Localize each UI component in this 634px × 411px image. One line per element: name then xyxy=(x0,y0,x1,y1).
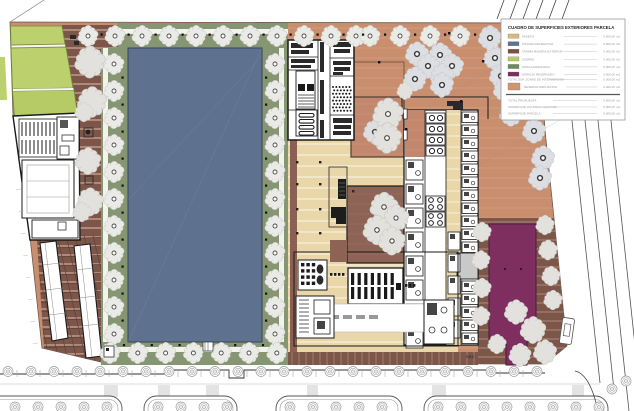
svg-text:SUPERFICIE PARCELA: SUPERFICIE PARCELA xyxy=(508,112,541,116)
svg-text:0.000,00 m2: 0.000,00 m2 xyxy=(603,73,620,77)
svg-text:0.000,00 m2: 0.000,00 m2 xyxy=(603,35,620,39)
svg-text:PISCINA RECREATIVA: PISCINA RECREATIVA xyxy=(522,42,553,46)
svg-text:0.000,00 m2: 0.000,00 m2 xyxy=(603,112,620,116)
svg-text:PASEOS: PASEOS xyxy=(522,35,534,39)
svg-text:0.000,00 m2: 0.000,00 m2 xyxy=(603,85,620,89)
svg-text:ZONA AJARDINADA: ZONA AJARDINADA xyxy=(522,65,550,69)
svg-text:0.000,00 m2: 0.000,00 m2 xyxy=(603,50,620,54)
svg-text:0.000,00 m2: 0.000,00 m2 xyxy=(603,99,620,103)
svg-text:RESERVA AMPLIACION: RESERVA AMPLIACION xyxy=(524,85,557,89)
svg-text:CESPED: CESPED xyxy=(522,57,535,61)
svg-text:SUPERFICIE OCUPADA CERRADA: SUPERFICIE OCUPADA CERRADA xyxy=(508,105,557,109)
svg-text:0.000,00 m2: 0.000,00 m2 xyxy=(603,42,620,46)
svg-text:0.000,00 m2: 0.000,00 m2 xyxy=(603,105,620,109)
svg-text:TOTAL PROPUESTA: TOTAL PROPUESTA xyxy=(508,99,536,103)
svg-text:0.000,00 m2: 0.000,00 m2 xyxy=(603,57,620,61)
svg-text:0.000,00 m2: 0.000,00 m2 xyxy=(603,78,620,82)
svg-text:0.000,00 m2: 0.000,00 m2 xyxy=(603,65,620,69)
svg-text:CUADRO DE SUPERFICIES EXTERIOR: CUADRO DE SUPERFICIES EXTERIORES PARCELA xyxy=(508,25,614,30)
svg-text:SSS: SSS xyxy=(466,354,474,359)
svg-text:ESPACIO RESERVADO: ESPACIO RESERVADO xyxy=(522,73,555,77)
svg-text:TARIMA MADERA EXTERIOR: TARIMA MADERA EXTERIOR xyxy=(522,50,563,54)
